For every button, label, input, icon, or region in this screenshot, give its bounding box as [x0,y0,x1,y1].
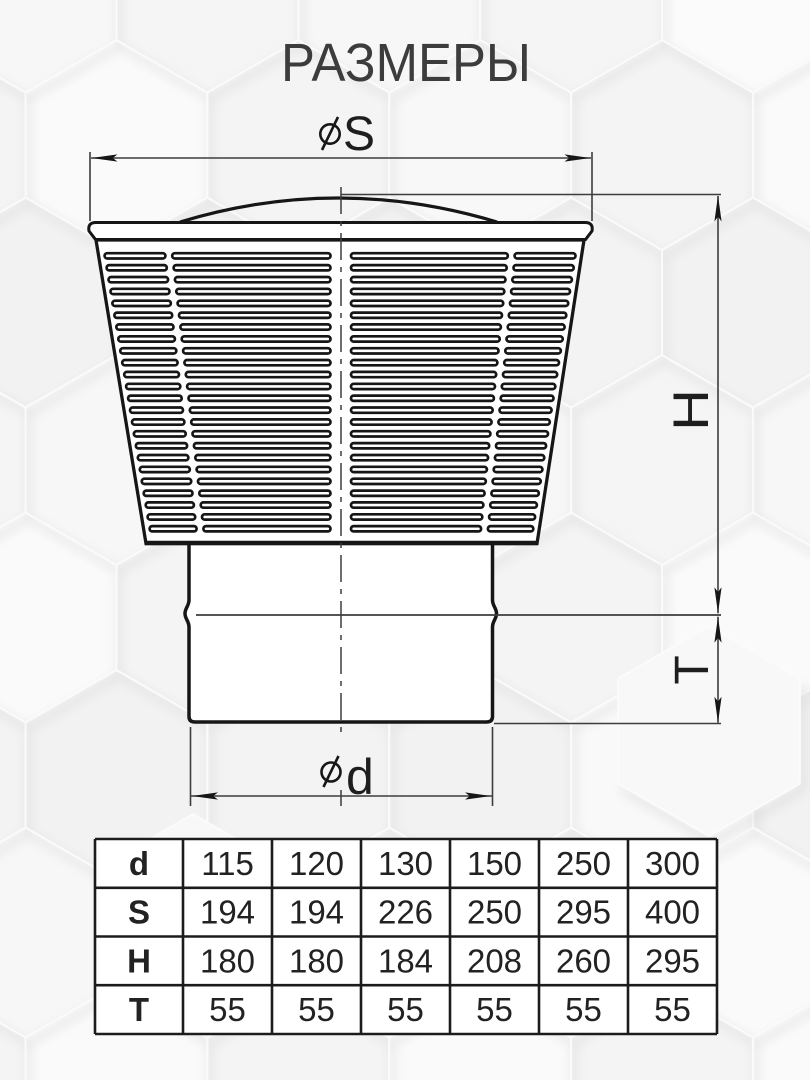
svg-text:150: 150 [467,845,522,882]
svg-text:194: 194 [289,894,344,931]
svg-text:300: 300 [645,845,700,882]
svg-text:T: T [666,655,719,684]
svg-text:РАЗМЕРЫ: РАЗМЕРЫ [281,34,531,93]
svg-text:55: 55 [298,991,335,1028]
svg-text:d: d [346,749,374,805]
svg-text:120: 120 [289,845,344,882]
svg-text:130: 130 [378,845,433,882]
svg-text:208: 208 [467,942,522,979]
svg-text:55: 55 [476,991,513,1028]
svg-text:S: S [343,108,375,161]
svg-text:250: 250 [556,845,611,882]
svg-text:H: H [664,389,719,431]
svg-text:55: 55 [209,991,246,1028]
svg-text:S: S [128,894,150,931]
svg-text:260: 260 [556,942,611,979]
svg-text:T: T [129,991,149,1028]
svg-text:115: 115 [201,845,254,882]
svg-text:250: 250 [467,894,522,931]
svg-text:184: 184 [378,942,433,979]
svg-text:180: 180 [289,942,344,979]
svg-text:H: H [127,942,151,979]
svg-text:180: 180 [200,942,255,979]
svg-text:55: 55 [565,991,602,1028]
svg-text:295: 295 [556,894,611,931]
svg-text:d: d [129,845,149,882]
svg-text:226: 226 [378,894,433,931]
svg-text:295: 295 [645,942,700,979]
svg-text:55: 55 [387,991,424,1028]
svg-text:400: 400 [645,894,700,931]
svg-text:194: 194 [200,894,255,931]
svg-text:55: 55 [654,991,691,1028]
